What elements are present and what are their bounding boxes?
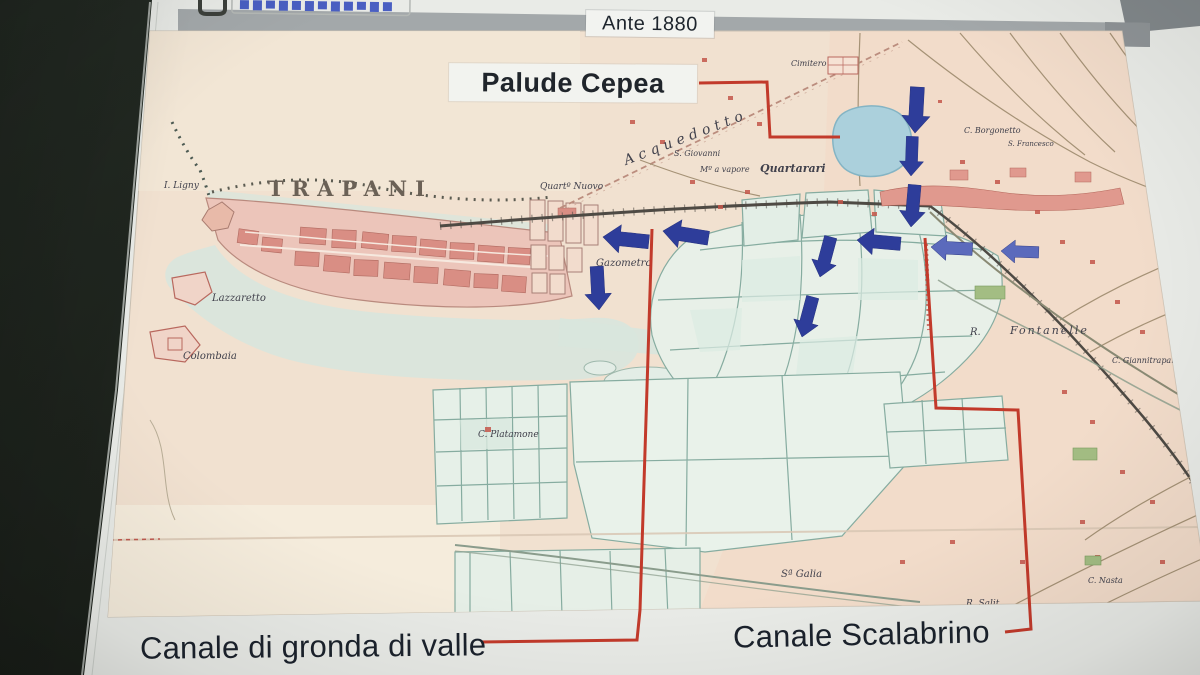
map-label-s-galia: Sª Galia <box>781 569 822 580</box>
map-label-quartiere-nuovo: Quartº Nuovo <box>540 182 604 192</box>
photo-of-map-slide: TRAPANI I. Ligny Lazzaretto Colombaia Qu… <box>0 0 1200 675</box>
map-label-gazometro: Gazometro <box>596 258 651 269</box>
map-label-molino: Mº a vapore <box>699 165 750 174</box>
map-label-borgonetto: C. Borgonetto <box>964 126 1021 135</box>
map-label-fontanelle: Fontanelle <box>1009 324 1089 337</box>
map-label-s-giovanni: S. Giovanni <box>674 149 721 158</box>
map-label-c-nasta: C. Nasta <box>1088 576 1123 585</box>
map-label-giannitrapani: C. Giannitrapani <box>1112 356 1179 365</box>
map-label-colombaia: Colombaia <box>183 351 237 362</box>
palude-cepea-label: Palude Cepea <box>449 63 697 103</box>
era-label: Ante 1880 <box>586 10 714 38</box>
cemetery <box>828 57 858 74</box>
map-label-quartarari: Quartarari <box>760 162 826 175</box>
map-label-lazzaretto: Lazzaretto <box>211 293 266 304</box>
map-label-cimitero: Cimitero <box>791 59 827 68</box>
canale-scalabrino-label: Canale Scalabrino <box>733 614 990 655</box>
lake-palude-cepea <box>833 106 912 177</box>
map-label-ligny: I. Ligny <box>163 181 200 191</box>
map-label-platamone: C. Platamone <box>478 430 539 440</box>
canale-gronda-label: Canale di gronda di valle <box>140 627 487 667</box>
map-label-s-francesco: S. Francesco <box>1008 140 1054 148</box>
trapani-title: TRAPANI <box>268 176 433 201</box>
map-label-r: R. <box>969 327 981 338</box>
